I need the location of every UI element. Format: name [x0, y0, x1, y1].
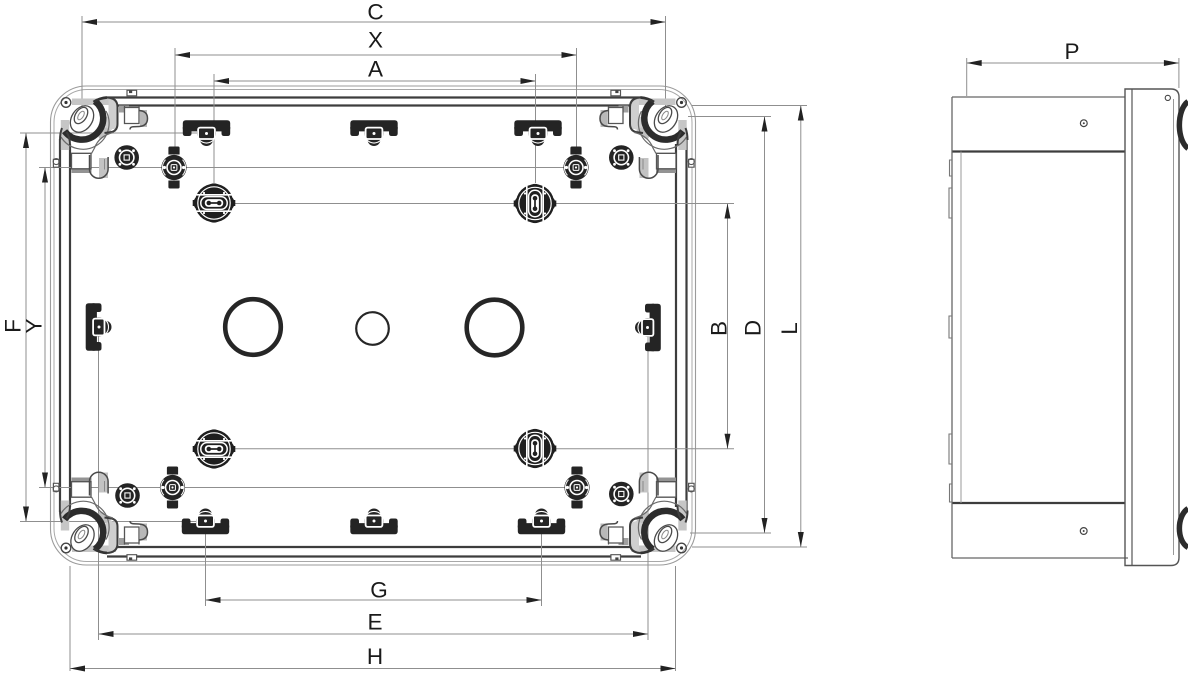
svg-text:D: D: [741, 320, 766, 336]
svg-text:P: P: [1064, 39, 1079, 64]
svg-text:L: L: [777, 322, 802, 335]
svg-text:C: C: [367, 0, 383, 25]
svg-text:Y: Y: [22, 318, 47, 333]
svg-text:A: A: [368, 56, 383, 81]
svg-text:B: B: [707, 321, 732, 336]
svg-text:H: H: [367, 644, 383, 669]
svg-text:G: G: [370, 577, 388, 602]
svg-text:E: E: [367, 610, 382, 635]
svg-text:X: X: [368, 28, 383, 53]
